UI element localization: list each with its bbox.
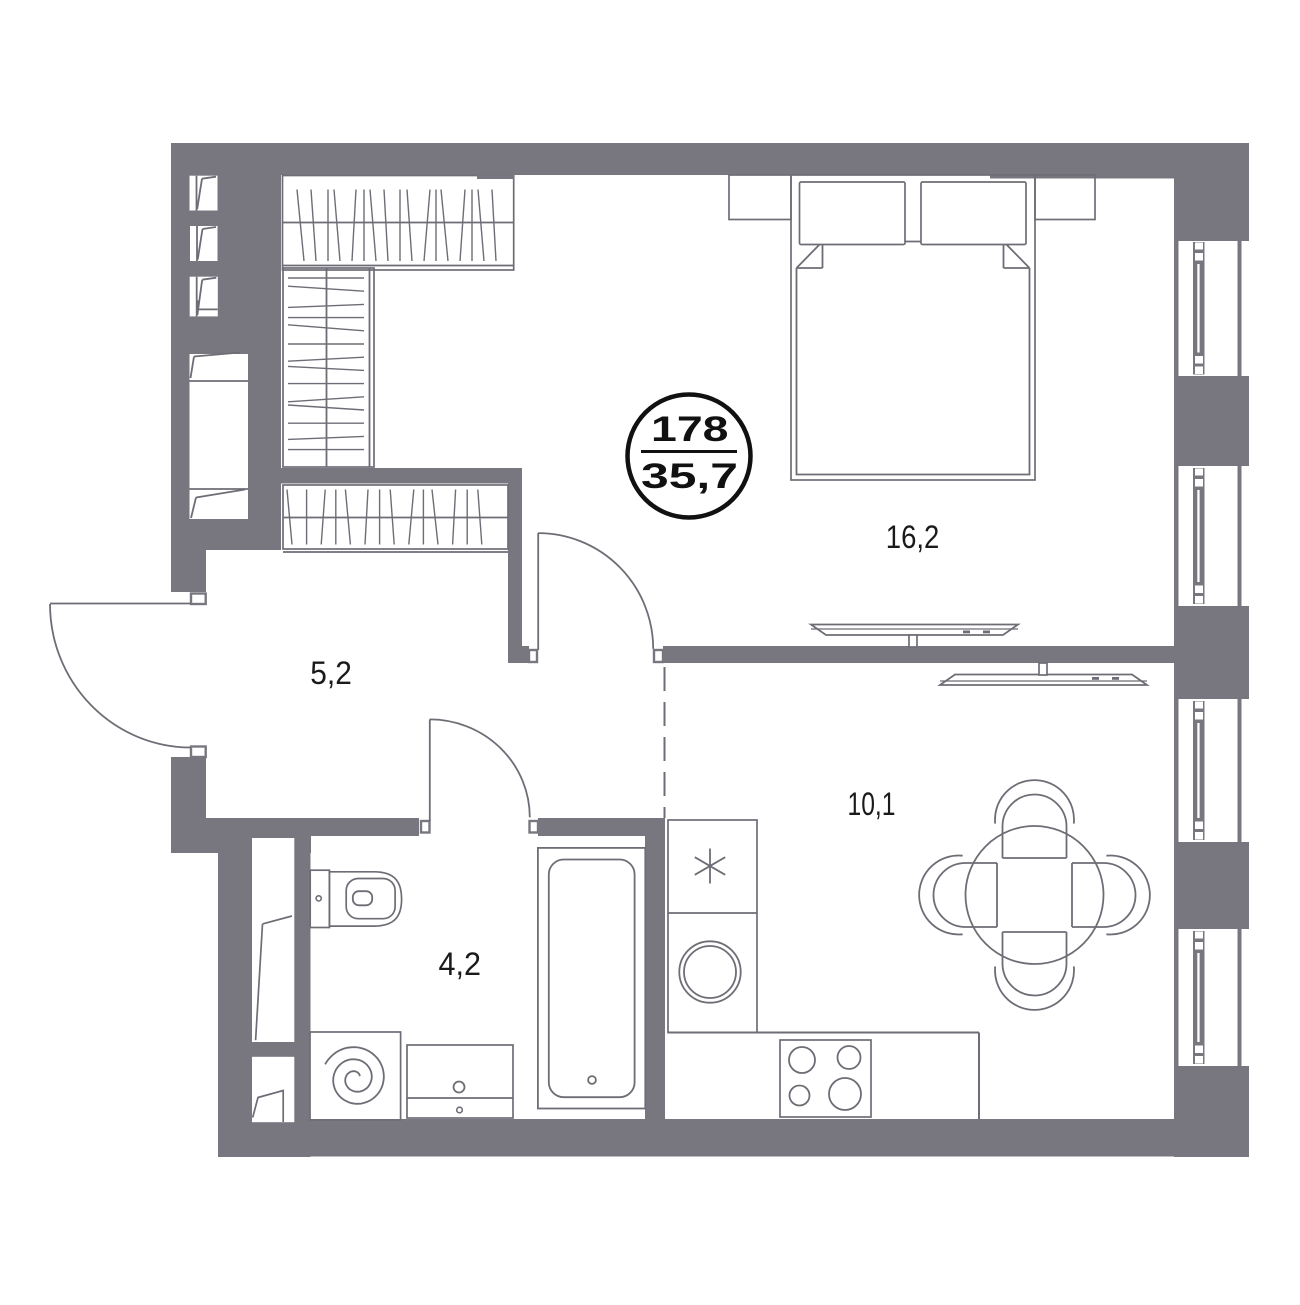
svg-text:35,7: 35,7 xyxy=(641,457,738,496)
svg-text:4,2: 4,2 xyxy=(439,946,482,982)
svg-text:178: 178 xyxy=(651,410,729,449)
svg-text:5,2: 5,2 xyxy=(310,655,352,691)
svg-text:10,1: 10,1 xyxy=(848,786,896,822)
svg-text:16,2: 16,2 xyxy=(886,519,940,555)
